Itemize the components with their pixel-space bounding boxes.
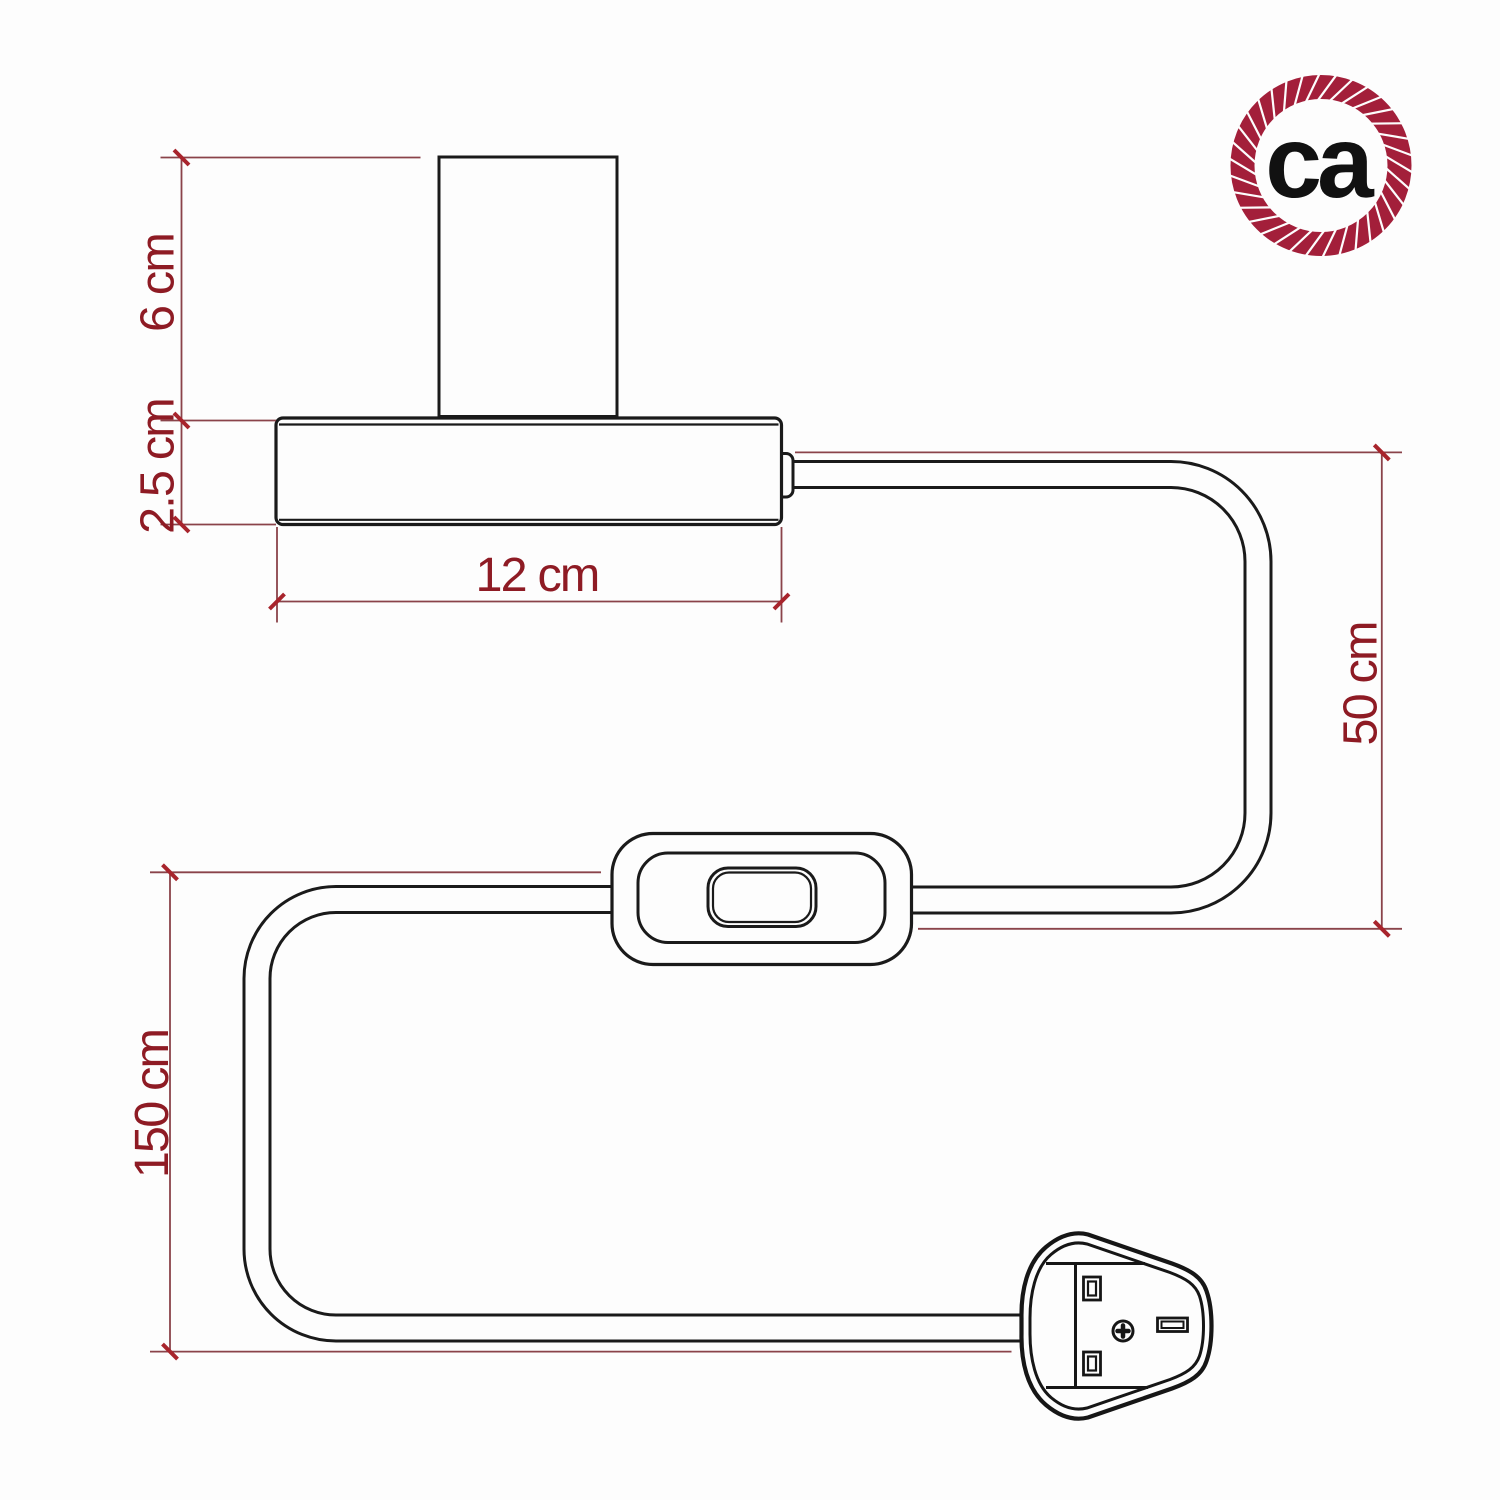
svg-text:2.5 cm: 2.5 cm bbox=[131, 399, 185, 534]
svg-text:6 cm: 6 cm bbox=[131, 234, 185, 332]
svg-text:50 cm: 50 cm bbox=[1334, 622, 1388, 745]
svg-text:ca: ca bbox=[1265, 105, 1375, 219]
svg-text:150 cm: 150 cm bbox=[125, 1030, 179, 1178]
svg-text:12 cm: 12 cm bbox=[475, 548, 598, 602]
